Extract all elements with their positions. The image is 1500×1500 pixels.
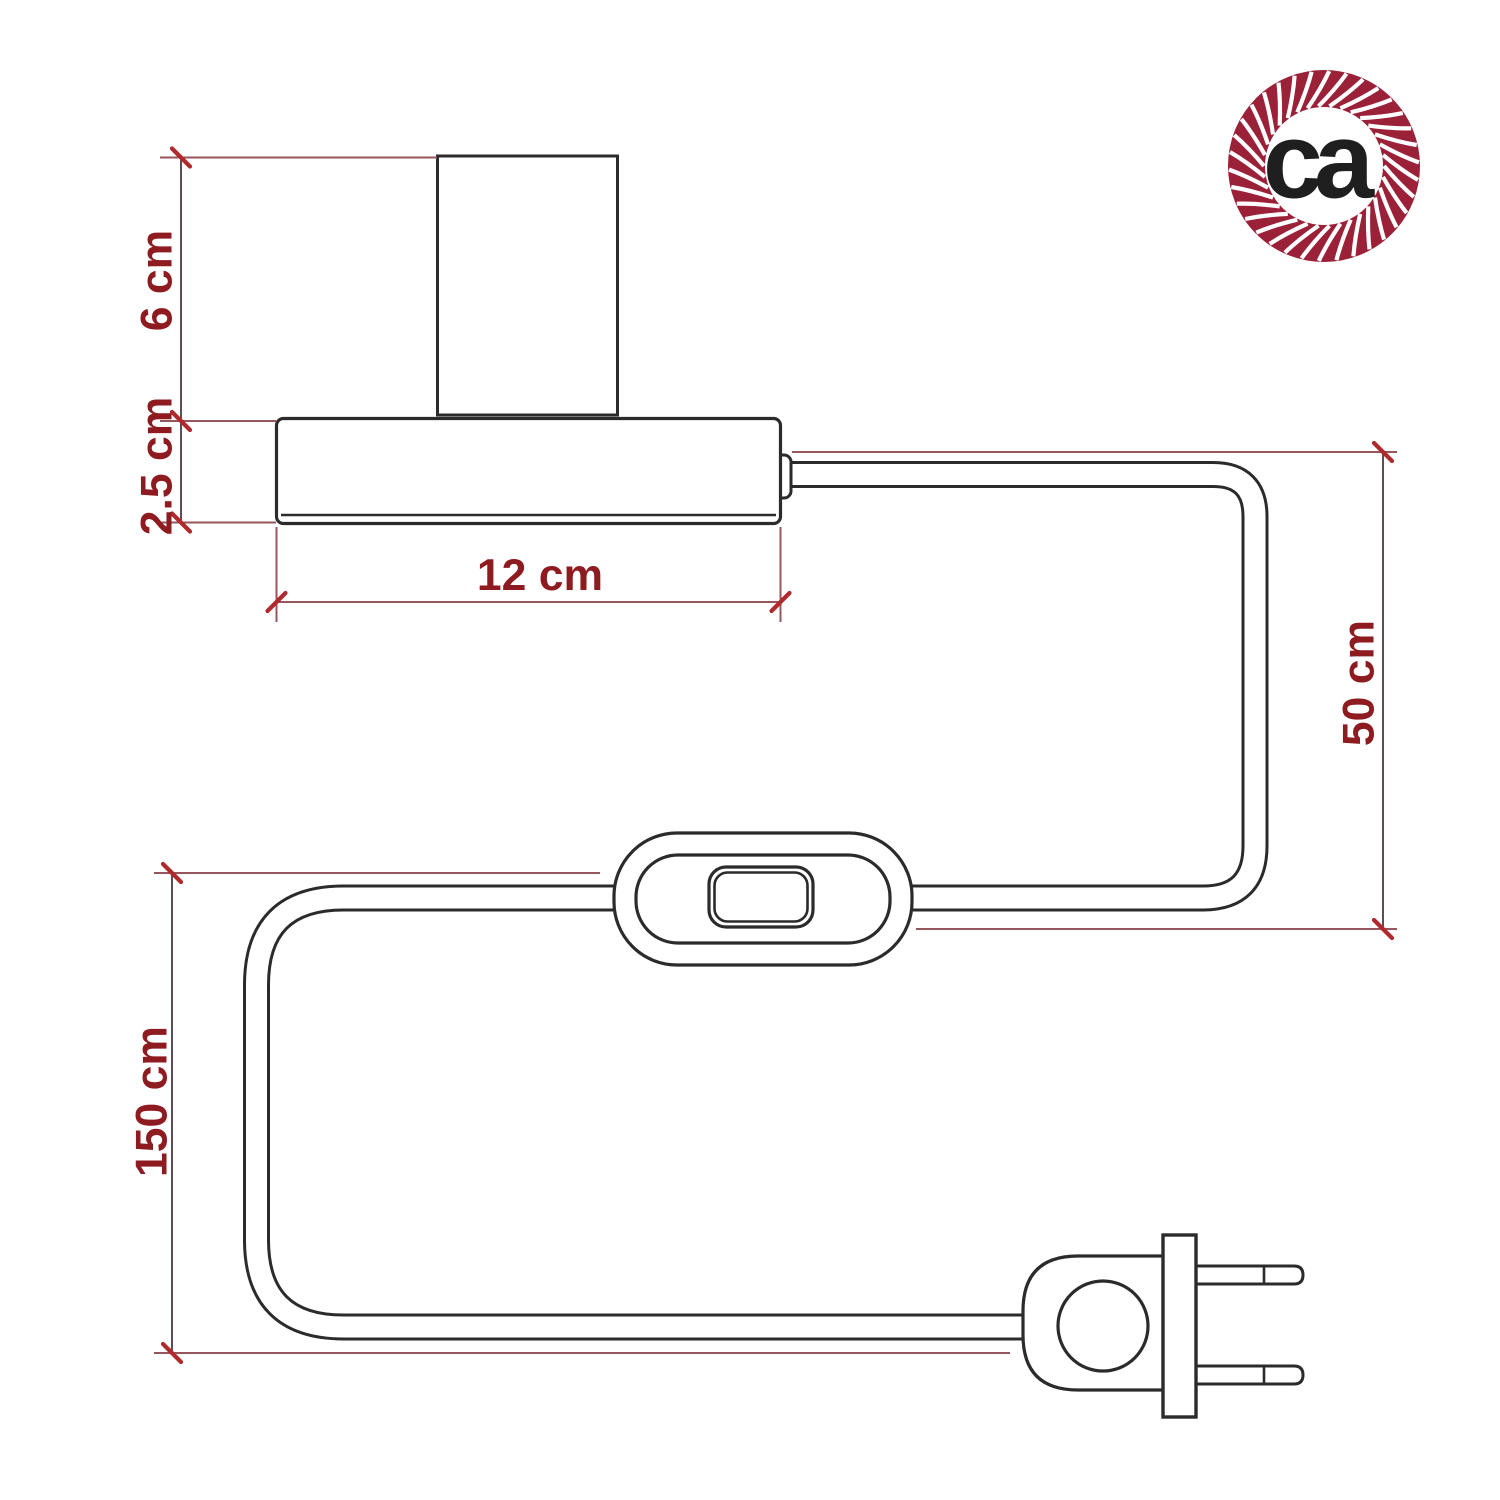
svg-text:6 cm: 6 cm xyxy=(133,230,182,331)
svg-text:ca: ca xyxy=(1263,100,1375,221)
svg-text:12 cm: 12 cm xyxy=(477,551,603,600)
svg-text:2.5 cm: 2.5 cm xyxy=(133,397,182,536)
svg-text:150 cm: 150 cm xyxy=(128,1026,177,1177)
svg-text:50 cm: 50 cm xyxy=(1335,620,1384,746)
